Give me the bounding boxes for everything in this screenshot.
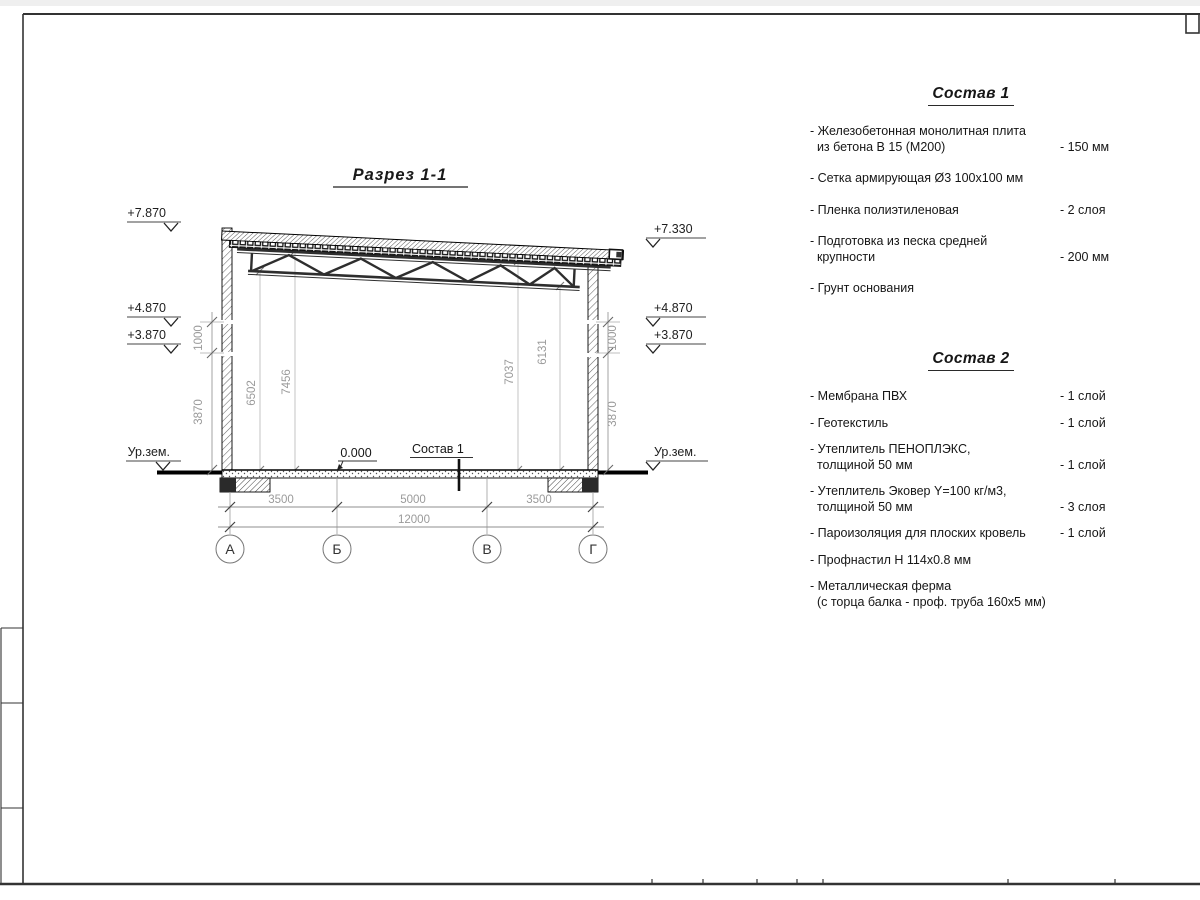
foundation-right <box>548 478 598 492</box>
axis-a: А <box>216 535 244 563</box>
item-text: - Мембрана ПВХ <box>810 389 1060 405</box>
axis-label-b: Б <box>332 541 341 557</box>
item-value: - 1 слой <box>1060 389 1132 405</box>
zero-label: 0.000 <box>340 446 371 460</box>
elevation-marks-right: +7.330 +4.870 +3.870 Ур.зем. <box>646 222 708 470</box>
elevation-7870: +7.870 <box>127 206 166 220</box>
vertical-dimension-right: 1000 3870 <box>596 312 620 475</box>
dim-left-3870: 3870 <box>193 399 205 425</box>
ground-level-mark-right: Ур.зем. <box>646 445 708 470</box>
wall-joint <box>587 353 598 357</box>
dim-labels: 3500 5000 3500 12000 <box>268 494 552 526</box>
dim-right-1000: 1000 <box>607 325 619 351</box>
list-item: - Пароизоляция для плоских кровель - 1 с… <box>810 526 1132 542</box>
item-text: - Геотекстиль <box>810 416 1060 432</box>
left-margin-boxes <box>1 628 23 884</box>
elevation-mark: +4.870 <box>127 301 181 326</box>
interior-dimension-labels: 6502 7456 7037 6131 <box>246 339 549 406</box>
item-value: - 150 мм <box>1060 140 1132 156</box>
item-text: - Профнастил Н 114х0.8 мм <box>810 553 1060 569</box>
elevation-mark: +4.870 <box>646 301 706 326</box>
drawing-sheet: Разрез 1-1 6502 7456 7037 6131 <box>0 0 1200 900</box>
scan-edge <box>0 0 1200 6</box>
elevation-3870-left: +3.870 <box>127 328 166 342</box>
roof-edge-cap <box>609 249 622 259</box>
item-value: - 1 слой <box>1060 458 1132 474</box>
vertical-dimension-left: 1000 3870 <box>193 312 224 475</box>
list-item: - Сетка армирующая Ø3 100х100 мм <box>810 171 1132 187</box>
elevation-mark: +3.870 <box>127 328 181 353</box>
dim-12000-total: 12000 <box>398 514 430 526</box>
bottom-dimensions: 3500 5000 3500 12000 <box>218 478 604 534</box>
item-text: - Металлическая ферма (с торца балка - п… <box>810 579 1060 610</box>
interior-dimensions <box>256 247 564 474</box>
elevation-mark: +7.870 <box>127 206 181 231</box>
dim-right-3870: 3870 <box>607 401 619 427</box>
materials-panel-1: Состав 1 - Железобетонная монолитная пли… <box>810 85 1132 313</box>
item-text: - Пароизоляция для плоских кровель <box>810 526 1060 542</box>
elevation-4870-right: +4.870 <box>654 301 693 315</box>
panel-title-wrap: Состав 2 <box>810 350 1132 371</box>
item-value: - 1 слой <box>1060 416 1132 432</box>
dim-interior-6131: 6131 <box>537 339 549 365</box>
list-item: - Железобетонная монолитная плита из бет… <box>810 124 1132 155</box>
zero-level-mark: 0.000 <box>337 446 377 470</box>
dim-interior-7037: 7037 <box>504 359 516 385</box>
sostav1-title: Состав 1 <box>928 85 1013 106</box>
elevation-mark: +3.870 <box>646 328 706 353</box>
floor-slab <box>222 470 598 478</box>
item-value: - 3 слоя <box>1060 500 1132 516</box>
section-title: Разрез 1-1 <box>353 166 448 184</box>
ground-level-mark-left: Ур.зем. <box>126 445 181 470</box>
list-item: - Грунт основания <box>810 281 1132 297</box>
item-text: - Сетка армирующая Ø3 100х100 мм <box>810 171 1060 187</box>
panel-title-wrap: Состав 1 <box>810 85 1132 106</box>
sostav2-title: Состав 2 <box>928 350 1013 371</box>
floor-composition-leader: Состав 1 <box>410 442 473 491</box>
elevation-marks-left: +7.870 +4.870 +3.870 Ур.зем. <box>126 206 181 470</box>
axis-label-v: В <box>482 541 491 557</box>
list-item: - Профнастил Н 114х0.8 мм <box>810 553 1132 569</box>
axis-bubbles: А Б В Г <box>216 535 607 563</box>
ground-label-right: Ур.зем. <box>654 445 696 459</box>
list-item: - Утеплитель Эковер Y=100 кг/м3, толщино… <box>810 484 1132 515</box>
item-text: - Утеплитель Эковер Y=100 кг/м3, толщино… <box>810 484 1060 515</box>
item-value: - 2 слоя <box>1060 203 1132 219</box>
list-item: - Металлическая ферма (с торца балка - п… <box>810 579 1132 610</box>
axis-v: В <box>473 535 501 563</box>
elevation-mark: +7.330 <box>646 222 706 247</box>
dim-3500-ab: 3500 <box>268 494 294 506</box>
elevation-3870-right: +3.870 <box>654 328 693 342</box>
item-text: - Утеплитель ПЕНОПЛЭКС, толщиной 50 мм <box>810 442 1060 473</box>
frame-corner-box <box>1186 14 1199 33</box>
drawing-title: Разрез 1-1 <box>333 166 468 187</box>
item-text: - Пленка полиэтиленовая <box>810 203 1060 219</box>
floor-leader-label: Состав 1 <box>412 442 464 456</box>
dim-interior-6502: 6502 <box>246 380 258 406</box>
list-item: - Геотекстиль - 1 слой <box>810 416 1132 432</box>
item-text: - Подготовка из песка средней крупности <box>810 234 1060 265</box>
axis-b: Б <box>323 535 351 563</box>
list-item: - Мембрана ПВХ - 1 слой <box>810 389 1132 405</box>
item-value: - 200 мм <box>1060 250 1132 266</box>
dim-3500-vg: 3500 <box>526 494 552 506</box>
elevation-4870-left: +4.870 <box>127 301 166 315</box>
list-item: - Утеплитель ПЕНОПЛЭКС, толщиной 50 мм -… <box>810 442 1132 473</box>
item-text: - Грунт основания <box>810 281 1060 297</box>
materials-panel-2: Состав 2 - Мембрана ПВХ - 1 слой - Геоте… <box>810 350 1132 621</box>
item-value: - 1 слой <box>1060 526 1132 542</box>
right-wall <box>587 254 598 470</box>
dim-interior-7456: 7456 <box>281 369 293 395</box>
left-wall <box>221 228 232 470</box>
dim-left-1000: 1000 <box>193 325 205 351</box>
axis-label-g: Г <box>589 541 597 557</box>
foundation-left <box>220 478 270 492</box>
ground-label-left: Ур.зем. <box>128 445 170 459</box>
dim-5000-bv: 5000 <box>400 494 426 506</box>
axis-g: Г <box>579 535 607 563</box>
item-text: - Железобетонная монолитная плита из бет… <box>810 124 1060 155</box>
list-item: - Подготовка из песка средней крупности … <box>810 234 1132 265</box>
axis-label-a: А <box>225 541 235 557</box>
list-item: - Пленка полиэтиленовая - 2 слоя <box>810 203 1132 219</box>
elevation-7330: +7.330 <box>654 222 693 236</box>
